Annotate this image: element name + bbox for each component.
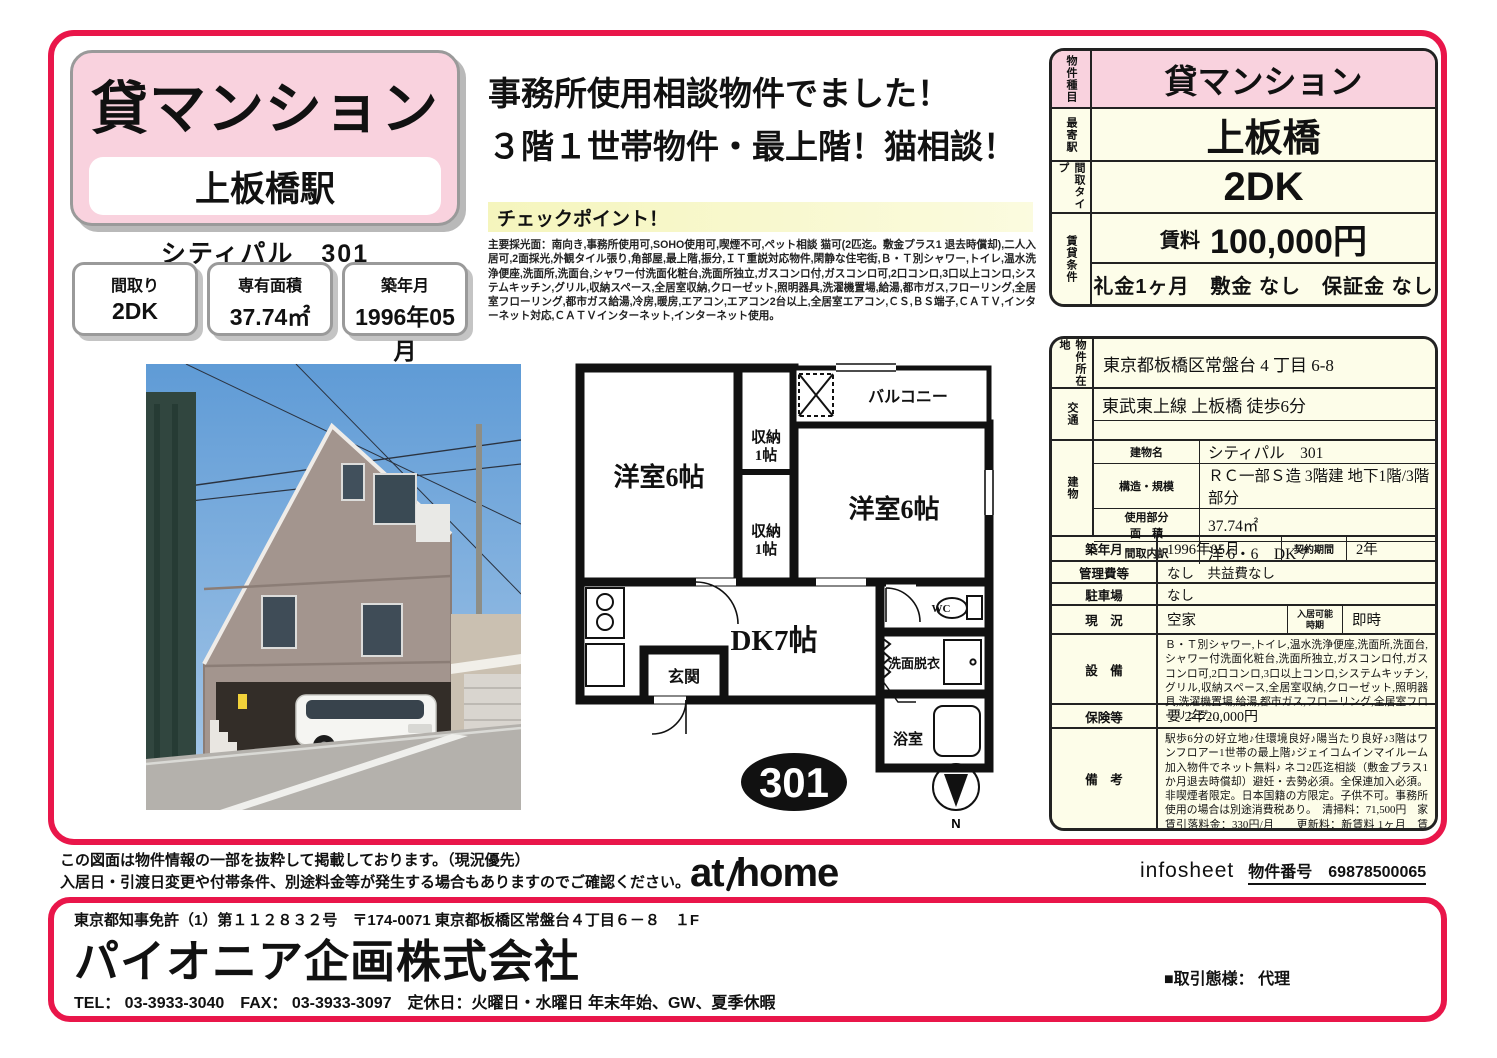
row-label: 間取タイプ: [1055, 162, 1087, 212]
category-value: 貸マンション: [1092, 51, 1435, 107]
mgmt-value: なし 共益費なし: [1158, 562, 1435, 582]
row-label: 管理費等: [1052, 562, 1158, 582]
row-built: 築年月 1996年05月 契約期間 2年: [1052, 537, 1435, 562]
photo-illustration: [146, 364, 521, 810]
location-value: 東京都板橋区常盤台 4 丁目 6-8: [1094, 339, 1435, 387]
station-value: 上板橋: [1092, 109, 1435, 160]
contract-label: 契約期間: [1281, 537, 1347, 560]
row-label: 現 況: [1052, 606, 1158, 633]
row-label: 備 考: [1052, 729, 1158, 828]
dealing-type: ■取引態様： 代理: [1164, 965, 1290, 989]
row-building: 建物 建物名 シティパル 301 構造・規模 ＲＣ一部Ｓ造 3階建 地下1階/3…: [1052, 441, 1435, 537]
headline-line2: ３階１世帯物件・最上階！猫相談！: [488, 121, 1048, 174]
compass-north: N: [951, 816, 960, 831]
row-label: 最寄駅: [1063, 117, 1079, 153]
row-insurance: 保険等 要 2年20,000円: [1052, 705, 1435, 729]
insurance-value: 要 2年20,000円: [1158, 705, 1435, 727]
property-photo: [146, 364, 521, 810]
sub-value: シティパル 301: [1200, 441, 1435, 463]
infosheet-word: infosheet: [1140, 859, 1234, 883]
row-layout-type: 間取タイプ 2DK: [1052, 162, 1435, 214]
row-label: 築年月: [1052, 537, 1158, 560]
label-bath: 浴室: [893, 730, 923, 748]
sign-yellow: [238, 694, 247, 709]
layout-value: 2DK: [1092, 162, 1435, 212]
label-room-left: 洋室6帖: [613, 462, 704, 492]
door-arc-entry: [652, 700, 686, 734]
remarks-text: 駅歩6分の好立地♪住環境良好♪陽当たり良好♪3階はワンフロアー1世帯の最上階♪ジ…: [1158, 729, 1435, 828]
row-label: 建物: [1064, 476, 1080, 500]
row-parking: 駐車場 なし: [1052, 584, 1435, 606]
row-category: 物件種目 貸マンション: [1052, 51, 1435, 109]
stat-boxes: 間取り 2DK 専有面積 37.74㎡ 築年月 1996年05月: [72, 262, 468, 336]
contract-value: 2年: [1347, 537, 1435, 560]
window-3f-right: [374, 474, 416, 524]
window-2f-left: [262, 596, 296, 648]
disclaimer-line2: 入居日・引渡日変更や付帯条件、別途料金等が発生する場合もありますのでご確認くださ…: [60, 872, 700, 894]
sub-label: 建物名: [1094, 441, 1200, 463]
row-label: 賃貸条件: [1063, 235, 1079, 283]
row-label: 設 備: [1052, 635, 1158, 703]
property-number-value: 69878500065: [1328, 864, 1426, 881]
infosheet-block: infosheet 物件番号 69878500065: [1140, 858, 1440, 885]
station-name: 上板橋駅: [195, 161, 335, 212]
access-value: 東武東上線 上板橋 徒歩6分: [1094, 389, 1435, 420]
label-washroom: 洗面脱衣: [888, 656, 940, 671]
athome-logo: athome: [690, 851, 838, 896]
row-label: 交通: [1064, 402, 1080, 426]
window-3f-left: [342, 464, 364, 500]
label-closet-bottom-jo: 1帖: [755, 540, 778, 558]
stat-label: 築年月: [345, 272, 465, 296]
access-empty: [1094, 421, 1435, 439]
label-closet-bottom: 収納: [751, 522, 781, 540]
row-label: 物件所在地: [1056, 339, 1088, 387]
stat-label: 専有面積: [210, 272, 330, 296]
property-number: 物件番号 69878500065: [1248, 858, 1426, 885]
disclaimer: この図面は物件情報の一部を抜粋して掲載しております。（現況優先） 入居日・引渡日…: [60, 850, 700, 894]
label-balcony: バルコニー: [868, 388, 948, 406]
built-value: 1996年05月: [1158, 537, 1281, 560]
logo-at: at: [690, 851, 724, 896]
rent-value: 100,000円: [1210, 214, 1367, 263]
flyer-page: 貸マンション 上板橋駅 シティパル 301 間取り 2DK 専有面積 37.74…: [0, 0, 1497, 1058]
row-equipment: 設 備 Ｂ・Ｔ別シャワー,トイレ,温水洗浄便座,洗面所,洗面台,シャワー付洗面化…: [1052, 635, 1435, 705]
title-box: 貸マンション 上板橋駅: [70, 50, 460, 226]
stat-value: 1996年05月: [345, 298, 465, 366]
checkpoint-band: チェックポイント！: [488, 202, 1033, 232]
row-label: 保険等: [1052, 705, 1158, 727]
right-column: 物件種目 貸マンション 最寄駅 上板橋 間取タイプ 2DK 賃貸条件 賃料: [1049, 48, 1438, 831]
movein-value: 即時: [1343, 606, 1435, 633]
stat-value: 2DK: [75, 298, 195, 325]
stat-value: 37.74㎡: [210, 298, 330, 332]
disclaimer-line1: この図面は物件情報の一部を抜粋して掲載しております。（現況優先）: [60, 850, 700, 872]
label-entrance: 玄関: [668, 667, 700, 686]
window-2f-right: [362, 604, 402, 656]
checkpoint-body: 主要採光面：南向き,事務所使用可,SOHO使用可,喫煙不可,ペット相談 猫可(2…: [488, 238, 1036, 324]
equipment-text: Ｂ・Ｔ別シャワー,トイレ,温水洗浄便座,洗面所,洗面台,シャワー付洗面化粧台,洗…: [1158, 635, 1435, 703]
row-location: 物件所在地 東京都板橋区常盤台 4 丁目 6-8: [1052, 339, 1435, 389]
row-status: 現 況 空家 入居可能 時期 即時: [1052, 606, 1435, 635]
property-number-label: 物件番号: [1248, 864, 1312, 881]
stat-layout: 間取り 2DK: [72, 262, 198, 336]
stat-built: 築年月 1996年05月: [342, 262, 468, 336]
row-label: 駐車場: [1052, 584, 1158, 604]
row-remarks: 備 考 駅歩6分の好立地♪住環境良好♪陽当たり良好♪3階はワンフロアー1世帯の最…: [1052, 729, 1435, 828]
row-mgmt: 管理費等 なし 共益費なし: [1052, 562, 1435, 584]
headline-line1: 事務所使用相談物件でました！: [488, 68, 1048, 121]
label-closet-top-jo: 1帖: [755, 446, 778, 464]
company-contact: TEL： 03-3933-3040 FAX： 03-3933-3097 定休日：…: [74, 989, 776, 1013]
rent-word: 賃料: [1160, 224, 1200, 253]
summary-table: 物件種目 貸マンション 最寄駅 上板橋 間取タイプ 2DK 賃貸条件 賃料: [1049, 48, 1438, 307]
row-station: 最寄駅 上板橋: [1052, 109, 1435, 162]
structure-row: 構造・規模 ＲＣ一部Ｓ造 3階建 地下1階/3階部分: [1094, 464, 1435, 509]
label-closet-top: 収納: [751, 428, 781, 446]
stat-area: 専有面積 37.74㎡: [207, 262, 333, 336]
terms-line: 礼金1ヶ月 敷金 なし 保証金 なし: [1092, 264, 1435, 304]
main-frame: 貸マンション 上板橋駅 シティパル 301 間取り 2DK 専有面積 37.74…: [48, 30, 1447, 845]
unit-number: 301: [759, 759, 829, 806]
detail-table: 物件所在地 東京都板橋区常盤台 4 丁目 6-8 交通 東武東上線 上板橋 徒歩…: [1049, 336, 1438, 831]
company-frame: 東京都知事免許（1）第１１２８３２号 〒174-0071 東京都板橋区常盤台４丁…: [48, 897, 1447, 1022]
stat-label: 間取り: [75, 272, 195, 296]
label-room-right: 洋室6帖: [848, 494, 939, 524]
movein-label: 入居可能 時期: [1287, 606, 1343, 633]
row-access: 交通 東武東上線 上板橋 徒歩6分: [1052, 389, 1435, 441]
logo-home: home: [736, 851, 839, 896]
neighbor-building-left: [146, 392, 196, 810]
sub-value: ＲＣ一部Ｓ造 3階建 地下1階/3階部分: [1200, 464, 1435, 508]
row-rent-terms: 賃貸条件 賃料 100,000円 礼金1ヶ月 敷金 なし 保証金 なし: [1052, 214, 1435, 304]
sub-label: 構造・規模: [1094, 464, 1200, 508]
label-wc: WC: [932, 603, 951, 615]
balcony-parapet: [416, 504, 450, 542]
rent-line: 賃料 100,000円: [1092, 214, 1435, 264]
headline: 事務所使用相談物件でました！ ３階１世帯物件・最上階！猫相談！: [488, 68, 1048, 174]
row-label: 物件種目: [1063, 55, 1079, 103]
station-box: 上板橋駅: [89, 157, 441, 215]
parking-value: なし: [1158, 584, 1435, 604]
label-dk: DK7帖: [730, 624, 817, 657]
building-name-row: 建物名 シティパル 301: [1094, 441, 1435, 464]
property-category: 貸マンション: [73, 63, 457, 145]
floor-plan: 洋室6帖 収納 1帖 収納 1帖 バルコニー 洋室6帖 DK7帖 玄関 WC 洗…: [556, 350, 1033, 834]
floorplan-drawing: 洋室6帖 収納 1帖 収納 1帖 バルコニー 洋室6帖 DK7帖 玄関 WC 洗…: [556, 350, 1033, 834]
company-name: パイオニア企画株式会社: [74, 925, 580, 990]
status-value: 空家: [1158, 606, 1287, 633]
